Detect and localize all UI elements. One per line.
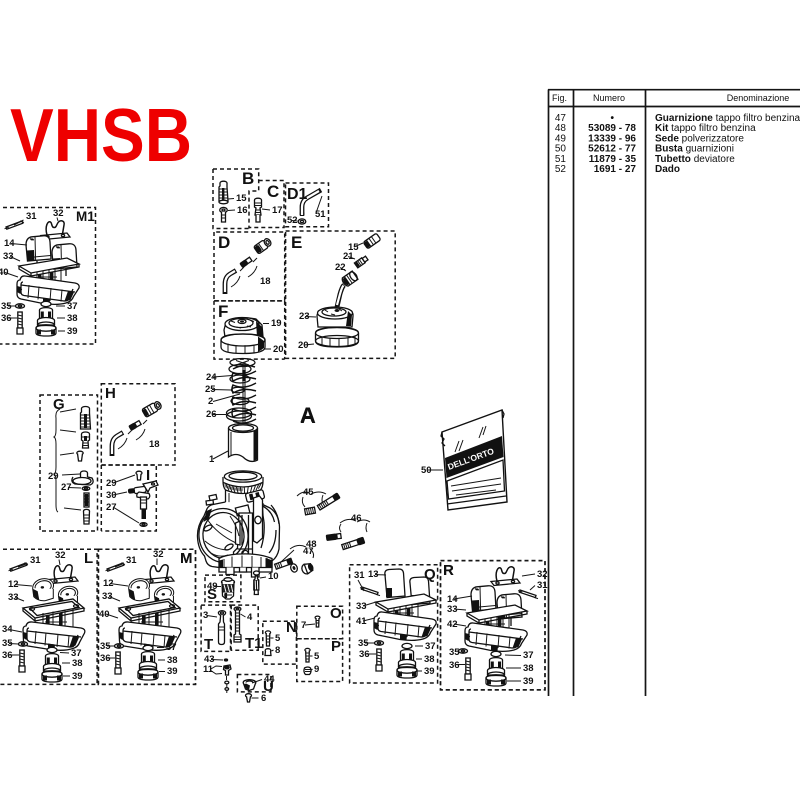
svg-text:31: 31	[354, 570, 365, 581]
svg-text:37: 37	[425, 641, 436, 652]
svg-text:30: 30	[106, 490, 117, 501]
svg-text:29: 29	[106, 478, 117, 489]
svg-text:32: 32	[55, 550, 66, 561]
svg-text:31: 31	[26, 211, 37, 222]
svg-text:18: 18	[260, 276, 271, 287]
svg-text:Denominazione: Denominazione	[727, 93, 790, 103]
svg-text:37: 37	[166, 642, 177, 653]
svg-text:33: 33	[356, 601, 367, 612]
svg-text:33: 33	[102, 591, 113, 602]
svg-text:15: 15	[236, 193, 247, 204]
svg-text:T1: T1	[245, 635, 263, 652]
svg-text:38: 38	[167, 655, 178, 666]
svg-text:29: 29	[48, 471, 59, 482]
svg-text:17: 17	[272, 205, 283, 216]
svg-text:35: 35	[449, 647, 460, 658]
svg-text:33: 33	[3, 251, 14, 262]
svg-text:M: M	[180, 550, 193, 567]
svg-text:I: I	[146, 467, 150, 484]
svg-text:T: T	[204, 636, 213, 653]
svg-text:11: 11	[203, 664, 214, 675]
svg-text:16: 16	[237, 205, 248, 216]
svg-text:40: 40	[0, 267, 9, 278]
svg-text:18: 18	[149, 439, 160, 450]
svg-text:L: L	[84, 550, 93, 567]
svg-text:F: F	[218, 302, 228, 321]
svg-text:Fig.: Fig.	[552, 93, 567, 103]
svg-text:VHSB: VHSB	[10, 93, 192, 177]
svg-text:33: 33	[8, 592, 19, 603]
svg-text:39: 39	[424, 666, 435, 677]
svg-text:41: 41	[356, 616, 367, 627]
svg-text:C: C	[267, 182, 279, 201]
svg-text:32: 32	[537, 569, 548, 580]
svg-text:31: 31	[30, 555, 41, 566]
svg-text:G: G	[53, 396, 65, 413]
svg-text:38: 38	[72, 658, 83, 669]
svg-text:46: 46	[351, 513, 362, 524]
svg-text:24: 24	[206, 372, 217, 383]
svg-text:H: H	[105, 385, 116, 402]
svg-text:E: E	[291, 233, 302, 252]
svg-text:1: 1	[209, 454, 215, 465]
svg-text:38: 38	[67, 313, 78, 324]
svg-text:39: 39	[67, 326, 78, 337]
svg-text:38: 38	[523, 663, 534, 674]
svg-text:20: 20	[273, 344, 284, 355]
svg-text:37: 37	[523, 650, 534, 661]
svg-text:B: B	[242, 169, 254, 188]
svg-text:N: N	[286, 619, 297, 636]
svg-text:52: 52	[555, 164, 567, 175]
svg-text:P: P	[331, 638, 341, 655]
svg-text:31: 31	[126, 555, 137, 566]
svg-text:39: 39	[72, 671, 83, 682]
svg-text:Dado: Dado	[655, 164, 680, 175]
svg-text:4: 4	[247, 612, 253, 623]
svg-text:7: 7	[301, 620, 306, 631]
svg-text:27: 27	[106, 502, 117, 513]
svg-text:1691 - 27: 1691 - 27	[594, 164, 637, 175]
svg-text:Numero: Numero	[593, 93, 625, 103]
svg-text:39: 39	[167, 666, 178, 677]
svg-text:32: 32	[53, 208, 64, 219]
svg-text:39: 39	[523, 676, 534, 687]
svg-text:20: 20	[298, 340, 309, 351]
svg-text:O: O	[330, 605, 342, 622]
svg-text:37: 37	[67, 301, 78, 312]
svg-text:36: 36	[449, 660, 460, 671]
svg-text:19: 19	[271, 318, 282, 329]
svg-text:R: R	[443, 562, 454, 579]
svg-text:D1: D1	[287, 186, 308, 203]
svg-text:D: D	[218, 233, 230, 252]
svg-text:5: 5	[314, 651, 320, 662]
svg-text:5: 5	[275, 633, 281, 644]
svg-text:U: U	[263, 678, 274, 695]
svg-text:9: 9	[314, 664, 319, 675]
svg-text:8: 8	[275, 645, 280, 656]
svg-text:2: 2	[208, 396, 213, 407]
svg-text:31: 31	[537, 580, 548, 591]
svg-text:A: A	[300, 404, 315, 427]
svg-text:10: 10	[268, 571, 279, 582]
svg-text:38: 38	[424, 654, 435, 665]
svg-text:32: 32	[153, 549, 164, 560]
svg-text:M1: M1	[76, 209, 95, 224]
